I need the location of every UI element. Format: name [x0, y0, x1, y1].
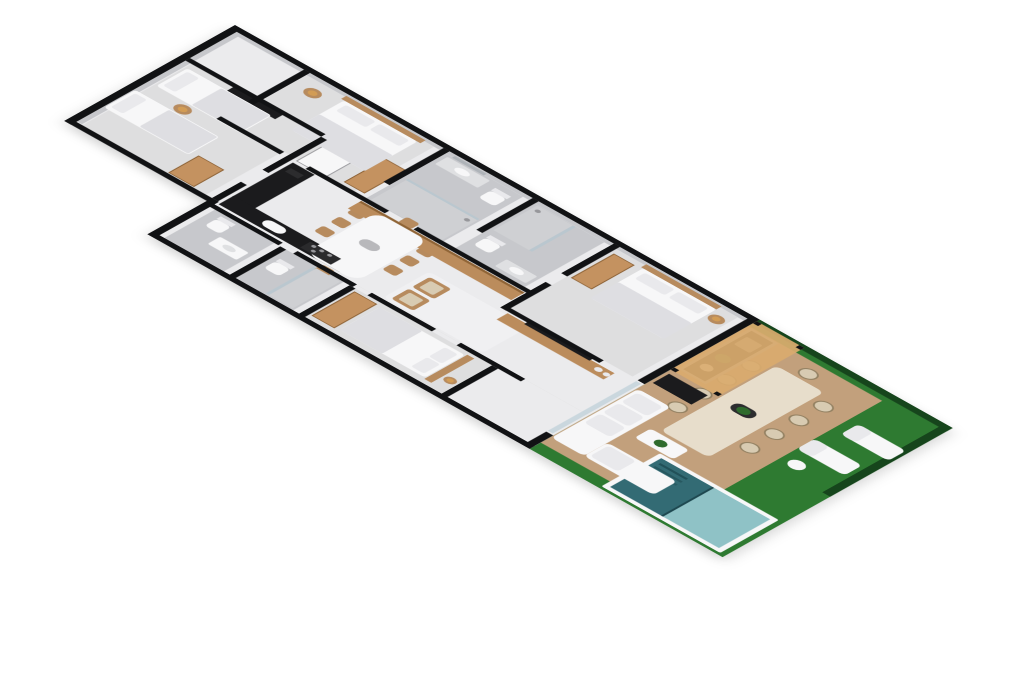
floorplan-render — [0, 0, 1024, 681]
iso-plane — [5, 25, 953, 557]
